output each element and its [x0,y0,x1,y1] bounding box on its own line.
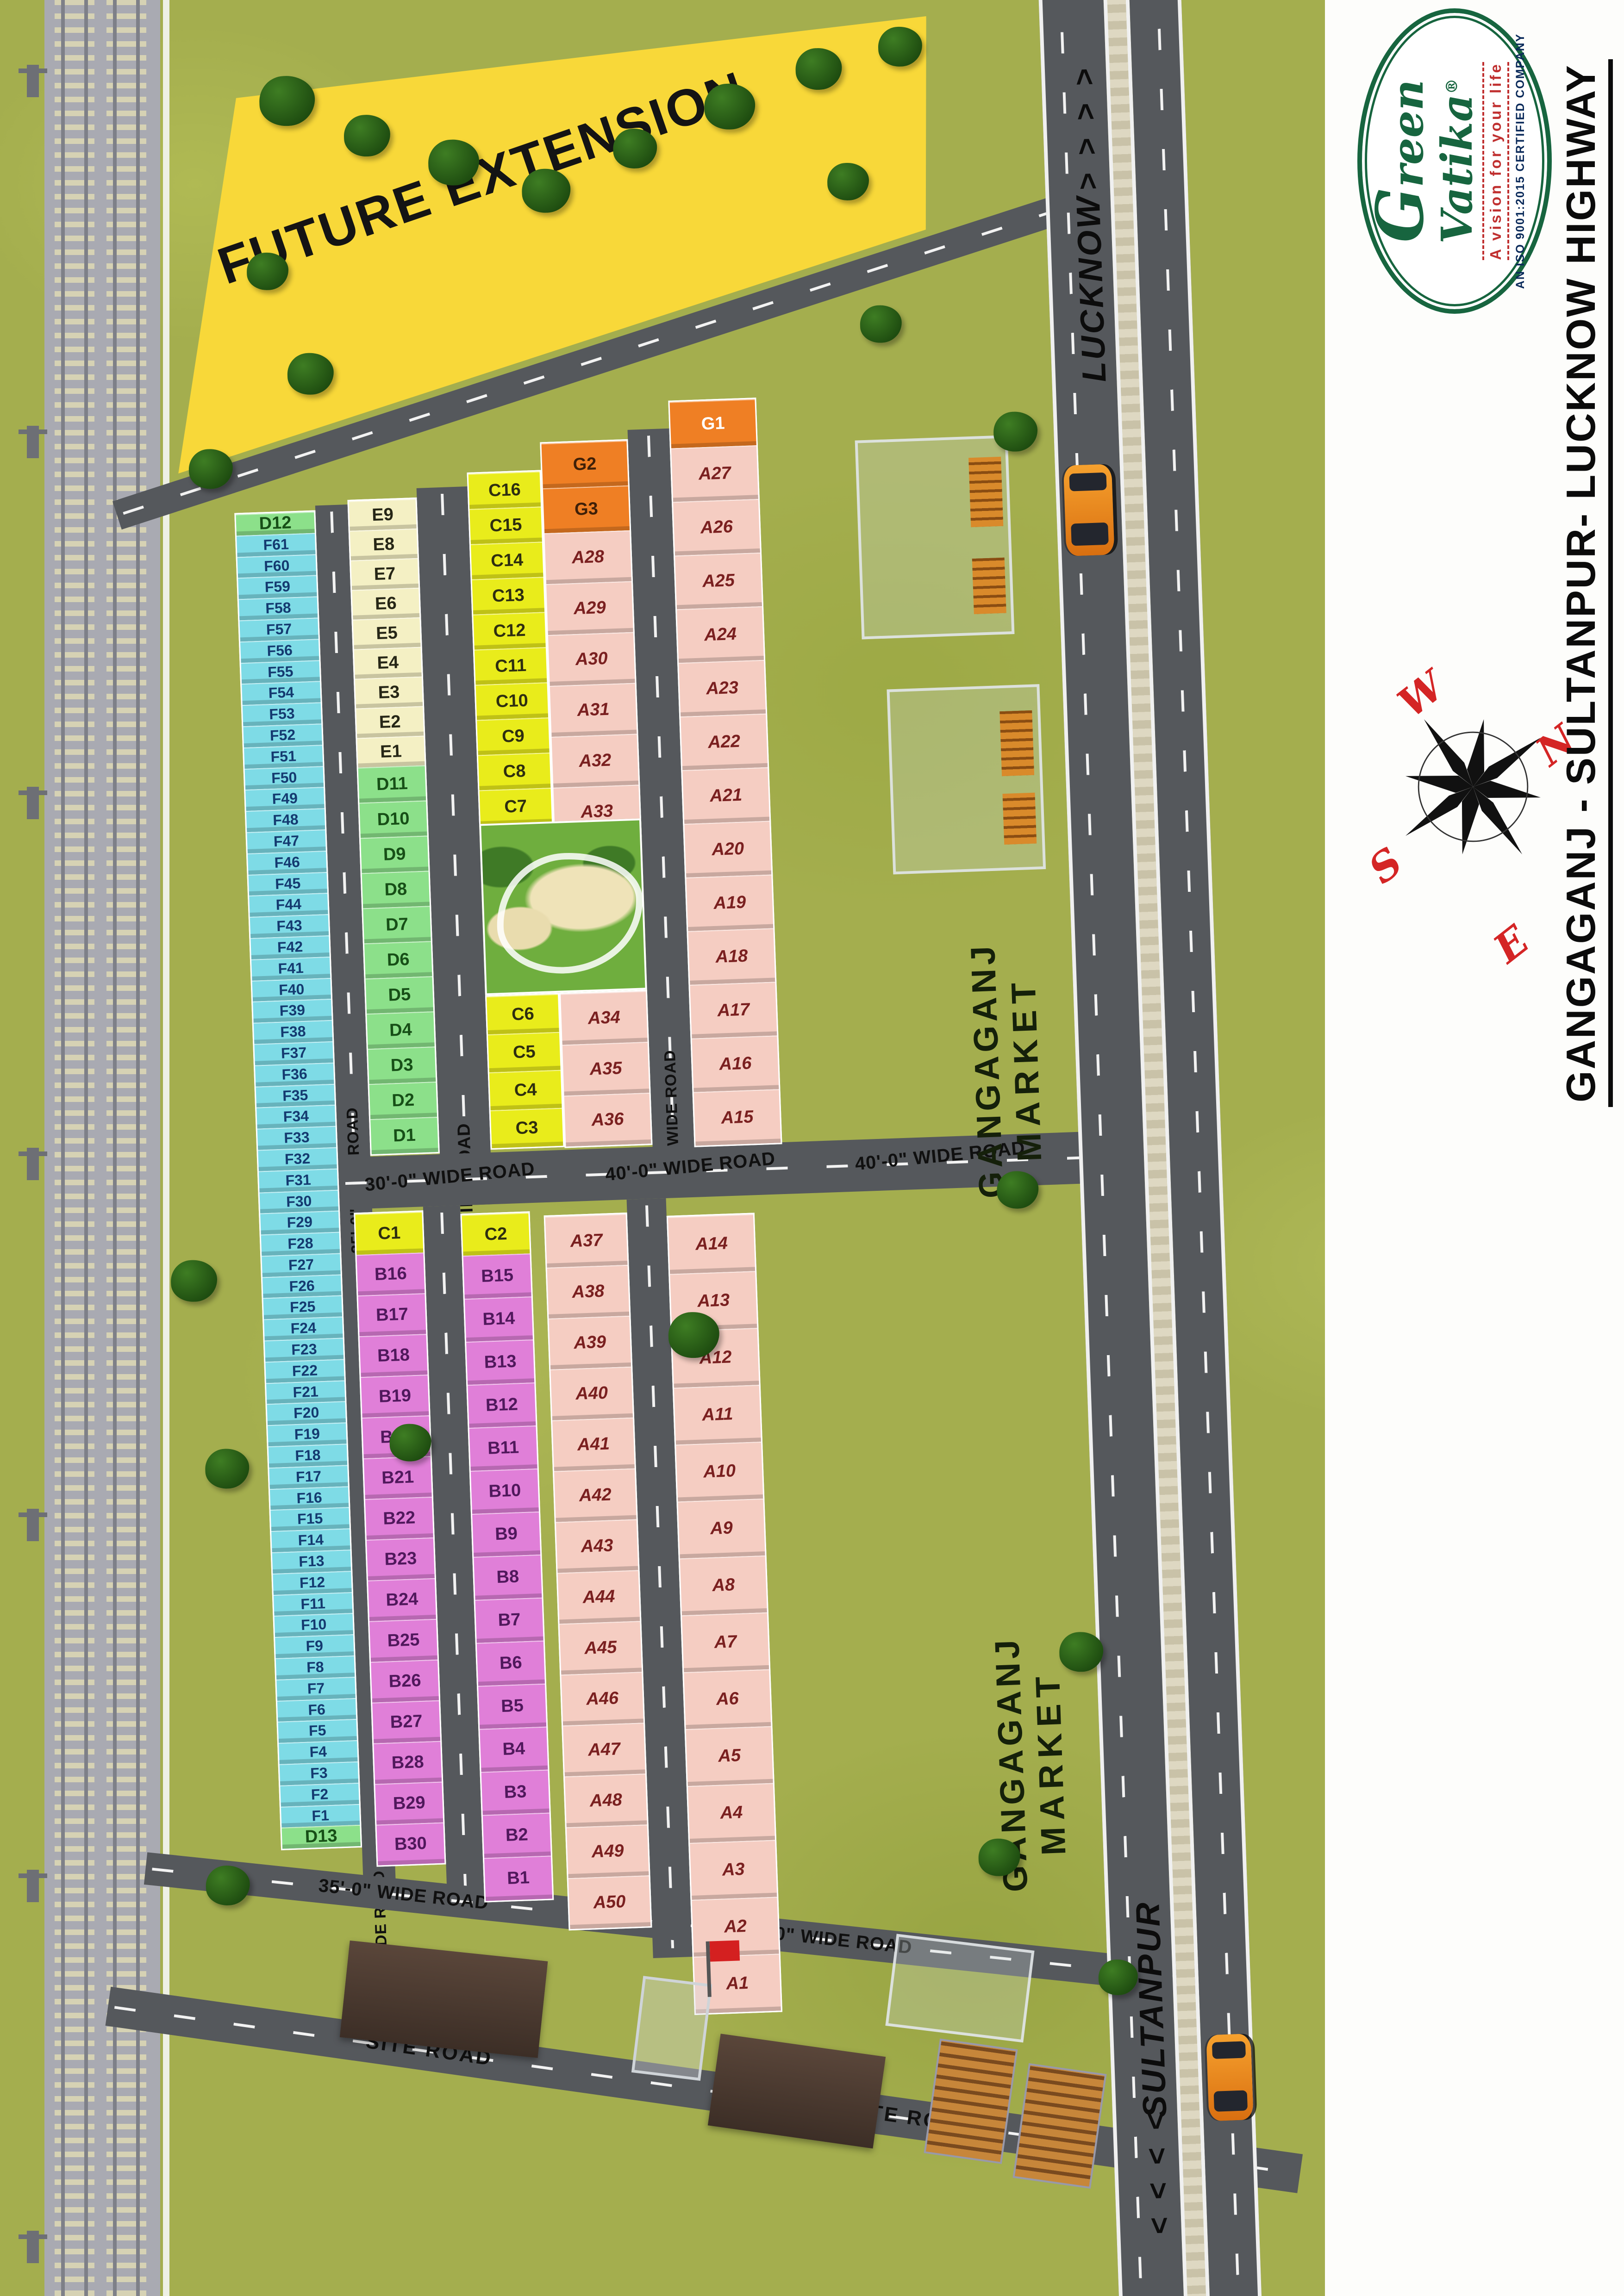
plot-A39: A39 [549,1316,631,1369]
plot-F32: F32 [258,1147,337,1171]
car-icon [1063,464,1115,556]
plot-F58: F58 [239,597,318,621]
market-stall [1012,2063,1106,2189]
plot-F7: F7 [276,1677,355,1701]
plot-F42: F42 [250,935,329,959]
plot-D7: D7 [363,906,431,943]
plot-F30: F30 [260,1189,338,1213]
plot-B3: B3 [481,1770,550,1815]
entry-gate [631,1976,712,2081]
plot-C14: C14 [471,541,543,579]
plot-B19: B19 [361,1375,429,1418]
lucknow-label: LUCKNOW [1069,194,1113,383]
road-label-30ft: 30'-0" WIDE ROAD [364,1158,536,1195]
site-plan-map: FUTURE EXTENSION 25'-0" WIDE ROAD 25'-0"… [100,2,1150,2296]
sultanpur-direction-arrows: < < < < [1138,2108,1176,2235]
plot-A24: A24 [677,606,764,663]
plot-E7: E7 [351,558,418,590]
plot-A22: A22 [681,714,768,770]
plot-F53: F53 [243,703,321,727]
plot-F19: F19 [268,1423,346,1447]
market-shed [855,435,1015,639]
plot-D6: D6 [364,941,432,978]
tree-icon [205,1865,250,1906]
plot-G1: G1 [669,399,756,448]
plot-A38: A38 [547,1265,630,1319]
plot-A10: A10 [676,1442,763,1501]
plot-C8: C8 [478,753,551,790]
plot-A50: A50 [568,1875,651,1929]
plot-A34: A34 [561,991,648,1045]
plot-F38: F38 [254,1020,332,1044]
market-stall [924,2039,1018,2164]
plot-D13: D13 [281,1825,360,1849]
plot-F49: F49 [245,787,324,811]
plot-C12: C12 [473,612,546,649]
plot-G3: G3 [543,485,630,533]
plot-column-c_top: C16C15C14C13C12C11C10C9C8C7 [467,470,554,827]
plot-A4: A4 [688,1783,775,1843]
plot-A9: A9 [678,1499,765,1558]
plot-column-ga_top: G2G3A28A29A30A31A32A33 [540,439,642,840]
plot-C9: C9 [477,717,550,755]
plot-B30: B30 [376,1823,444,1866]
plot-F18: F18 [269,1444,347,1468]
plot-A7: A7 [682,1612,769,1672]
plot-B1: B1 [484,1856,552,1901]
plot-B22: B22 [365,1497,433,1540]
plot-A5: A5 [686,1726,773,1786]
plot-F37: F37 [254,1041,333,1065]
plot-E8: E8 [350,529,418,560]
plot-F55: F55 [241,660,320,684]
plot-F61: F61 [237,533,315,557]
plot-A37: A37 [545,1214,628,1268]
railway-pole-icon [27,2231,39,2263]
plot-D8: D8 [362,871,430,908]
plot-C7: C7 [479,788,552,825]
plot-F34: F34 [256,1105,335,1129]
plot-B23: B23 [367,1537,435,1580]
plot-F26: F26 [262,1274,341,1298]
market-label-line2: MARKET [1028,1669,1073,1856]
plot-F14: F14 [271,1529,350,1553]
railway-pole-icon [27,65,39,97]
plot-A48: A48 [565,1773,647,1827]
railway-pole-icon [27,787,39,819]
plot-F17: F17 [269,1465,348,1489]
plot-B9: B9 [472,1512,540,1557]
plot-A18: A18 [688,928,775,985]
plot-F16: F16 [270,1486,349,1510]
plot-B12: B12 [468,1382,536,1428]
plot-F6: F6 [277,1698,356,1722]
plot-F35: F35 [256,1083,335,1108]
plot-A15: A15 [694,1089,781,1145]
car-icon [1206,2034,1253,2121]
plot-B8: B8 [474,1555,542,1600]
plot-C5: C5 [488,1032,561,1072]
plot-B5: B5 [478,1684,546,1729]
compass-east: E [1485,917,1538,972]
plot-C4: C4 [489,1070,562,1110]
plot-A14: A14 [668,1214,755,1274]
market-shed [887,684,1046,874]
plot-F52: F52 [243,723,322,747]
green-vatika-logo: Green Vatika® A vision for your life AN … [1357,8,1552,314]
plot-B6: B6 [477,1641,545,1686]
plot-D3: D3 [368,1046,436,1084]
plot-F36: F36 [255,1063,334,1087]
plot-C1: C1 [355,1212,423,1255]
plot-A49: A49 [567,1824,649,1878]
plot-B24: B24 [368,1578,436,1621]
plot-F31: F31 [259,1168,337,1192]
plot-A40: A40 [550,1367,633,1420]
plot-column-ga_bottom: A34A35A36 [559,989,653,1148]
plot-A43: A43 [556,1519,638,1573]
plot-A20: A20 [684,821,771,877]
plot-B27: B27 [372,1700,440,1743]
plot-A31: A31 [550,683,637,737]
plot-F15: F15 [270,1507,349,1531]
plot-F10: F10 [274,1613,353,1637]
building [708,2034,886,2148]
tree-icon [996,1170,1039,1209]
plot-F11: F11 [274,1592,352,1616]
plot-B4: B4 [480,1727,548,1772]
market-shed [885,1934,1034,2042]
plot-F25: F25 [263,1295,342,1319]
gangaganj-market-label-north: GANGAGANJ MARKET [963,940,1050,1199]
plot-F22: F22 [265,1359,344,1383]
plot-F41: F41 [251,957,330,981]
plot-E4: E4 [354,647,422,679]
plot-F54: F54 [242,681,320,705]
plot-E9: E9 [349,499,417,531]
market-label-line2: MARKET [1004,976,1049,1162]
plot-F23: F23 [265,1338,344,1362]
plot-F60: F60 [237,554,316,578]
plot-F29: F29 [260,1211,339,1235]
plot-F28: F28 [261,1232,340,1256]
plot-F39: F39 [253,999,331,1023]
sultanpur-label: SULTANPUR [1129,1900,1174,2118]
tree-icon [993,411,1038,452]
railway-rail-left [55,0,94,2296]
plot-B2: B2 [483,1813,551,1858]
plot-A6: A6 [684,1669,771,1729]
plot-B29: B29 [375,1782,443,1825]
plot-A21: A21 [682,767,769,824]
railway-pole-icon [27,426,39,458]
plot-B15: B15 [463,1253,531,1299]
plot-F13: F13 [272,1549,351,1574]
plot-E3: E3 [355,677,423,709]
plot-B11: B11 [469,1425,537,1471]
plot-C15: C15 [469,506,542,544]
plot-F44: F44 [249,893,328,917]
logo-tagline: A vision for your life [1482,62,1509,260]
logo-name: Green Vatika® [1367,22,1480,300]
plot-F46: F46 [248,851,326,875]
plot-F5: F5 [278,1719,356,1743]
plot-A3: A3 [690,1840,777,1900]
plot-F59: F59 [238,575,317,599]
plot-F50: F50 [245,766,324,790]
plot-B18: B18 [360,1334,428,1377]
plot-D9: D9 [361,835,429,873]
plot-B21: B21 [364,1456,432,1499]
plot-F48: F48 [246,808,325,832]
plot-A25: A25 [675,553,762,609]
road-label-40ft: 40'-0" WIDE ROAD [604,1148,776,1185]
plot-A35: A35 [562,1042,650,1095]
plot-F27: F27 [262,1253,340,1277]
site-plan-page: FUTURE EXTENSION 25'-0" WIDE ROAD 25'-0"… [0,0,1624,2296]
plot-A45: A45 [559,1621,642,1674]
plot-A26: A26 [673,499,760,555]
plot-A11: A11 [674,1385,761,1444]
plot-F57: F57 [239,617,318,641]
tree-icon [859,305,902,343]
tree-icon [205,1448,250,1489]
plot-D5: D5 [366,976,434,1014]
plot-F56: F56 [240,639,319,663]
plot-E6: E6 [352,588,419,620]
plot-D2: D2 [369,1082,437,1119]
plot-A42: A42 [554,1468,637,1522]
plot-C10: C10 [476,682,549,720]
plot-A44: A44 [558,1570,640,1624]
plot-D4: D4 [367,1011,435,1049]
plot-D12: D12 [236,512,314,536]
plot-C6: C6 [487,994,559,1034]
building [340,1941,548,2058]
plot-F12: F12 [273,1571,351,1595]
railway-pole-icon [27,1509,39,1541]
plot-B10: B10 [471,1468,539,1514]
plot-A19: A19 [686,875,773,931]
plot-F3: F3 [280,1761,358,1786]
plot-B7: B7 [475,1598,543,1643]
plot-G2: G2 [541,441,628,488]
plot-B28: B28 [374,1741,442,1784]
plot-F2: F2 [280,1783,359,1807]
plot-F20: F20 [267,1401,346,1425]
plot-column-c_bottom: C6C5C4C3 [485,993,565,1150]
plot-E2: E2 [356,706,424,738]
plot-F33: F33 [257,1126,336,1150]
compass-south: S [1360,839,1411,893]
logo-certification: AN ISO 9001:2015 CERTIFIED COMPANY [1514,22,1527,300]
info-sidebar: Green Vatika® A vision for your life AN … [1325,0,1624,2296]
plot-A29: A29 [546,581,633,635]
plot-E5: E5 [353,617,420,649]
plot-A28: A28 [544,530,631,584]
park-area [479,818,647,995]
plot-A17: A17 [690,982,777,1038]
plot-F43: F43 [250,914,329,938]
plot-B13: B13 [466,1339,534,1385]
plot-D10: D10 [359,801,427,838]
plot-F51: F51 [244,745,323,769]
lucknow-direction-arrows: > > > > [1067,63,1105,190]
railway-pole-icon [27,1870,39,1902]
plot-A41: A41 [552,1418,635,1471]
plot-A8: A8 [680,1556,767,1615]
plot-A46: A46 [561,1672,643,1725]
plot-B14: B14 [465,1296,533,1342]
plot-F1: F1 [281,1804,360,1828]
plot-A47: A47 [563,1723,645,1776]
plot-A16: A16 [692,1035,779,1092]
plot-B25: B25 [369,1619,437,1662]
plot-A32: A32 [552,734,639,788]
plot-A23: A23 [679,660,766,716]
plot-F8: F8 [276,1655,355,1680]
plot-C11: C11 [475,647,547,684]
plot-B16: B16 [356,1252,425,1295]
tree-icon [170,1259,218,1302]
plot-F4: F4 [279,1740,357,1764]
plot-D1: D1 [370,1117,438,1154]
plot-F47: F47 [247,829,325,853]
plot-B17: B17 [358,1293,426,1336]
plot-A30: A30 [548,632,635,686]
plot-F45: F45 [249,872,327,896]
plot-C3: C3 [491,1108,563,1148]
plot-C16: C16 [468,472,541,509]
plot-C13: C13 [472,577,545,614]
plot-F40: F40 [252,978,331,1002]
plot-A36: A36 [564,1093,651,1146]
plot-D11: D11 [358,765,426,803]
railway-pole-icon [27,1148,39,1180]
plot-B26: B26 [371,1660,439,1703]
plot-F24: F24 [264,1317,343,1341]
plot-C2: C2 [462,1213,530,1256]
highway-title: GANGAGANJ - SULTANPUR- LUCKNOW HIGHWAY [1557,59,1613,1107]
plot-F21: F21 [266,1380,345,1404]
plot-A27: A27 [671,445,758,502]
plot-F9: F9 [275,1634,354,1658]
plot-E1: E1 [357,736,425,768]
